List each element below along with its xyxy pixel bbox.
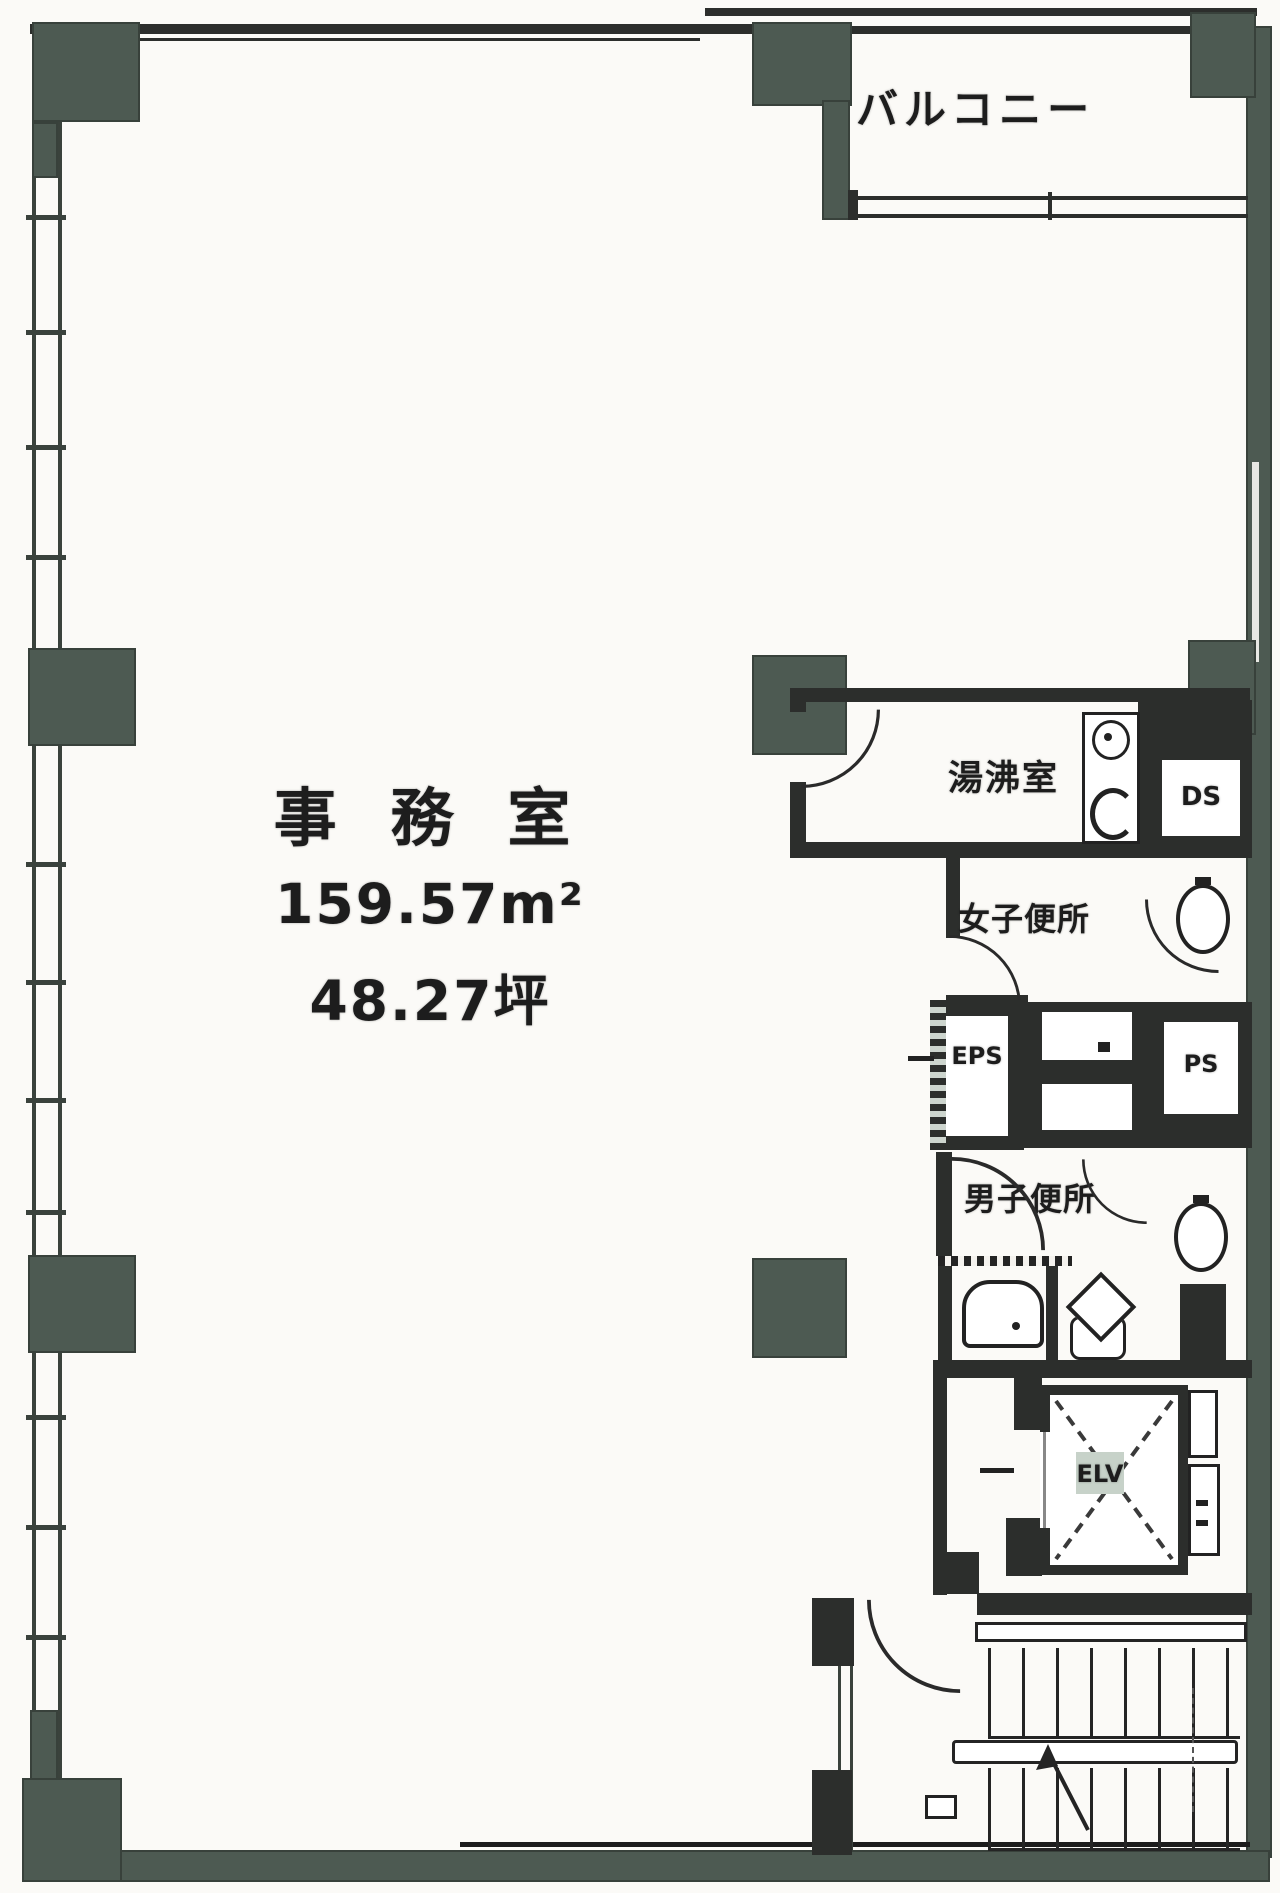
door-arc: [950, 1157, 1045, 1252]
elv-door-jamb-top: [1014, 1378, 1042, 1430]
floor-plan: バルコニー 事 務 室 159.57m² 48.27坪 湯沸室 DS 女子便所 …: [0, 0, 1280, 1893]
elevator-label: ELV: [1076, 1460, 1124, 1488]
pillar-bottom-left: [22, 1778, 122, 1882]
window-mullion: [26, 980, 66, 985]
elv-equipment-mark: [1196, 1500, 1208, 1506]
elv-equipment-mark: [1196, 1520, 1208, 1526]
elv-door-jamb-bottom: [1006, 1518, 1042, 1576]
eps-tick: [908, 1056, 934, 1061]
womens-toilet-label: 女子便所: [958, 894, 1090, 940]
door-arc: [867, 1598, 962, 1693]
shaft-block: [1180, 1284, 1226, 1364]
stair-jamb-bottom: [812, 1770, 852, 1855]
eps-room: [946, 1016, 1008, 1136]
washstand-cell-bottom: [1042, 1084, 1132, 1134]
wall-left-window-inner: [58, 120, 62, 1780]
stall-wall-left: [938, 1266, 952, 1366]
balcony-railing-outer: [705, 8, 1257, 16]
elv-lobby-step: [933, 1552, 979, 1594]
faucet-icon: [1098, 1042, 1110, 1052]
balcony-divider-wall: [822, 100, 850, 220]
pillar-top-left: [32, 22, 140, 122]
elv-equipment-bottom: [1188, 1464, 1220, 1556]
window-mullion: [26, 862, 66, 867]
window-mullion: [26, 330, 66, 335]
window-line-top: [140, 38, 700, 41]
wall-right-window: [1252, 462, 1259, 662]
sink-basin-icon: [1092, 720, 1130, 760]
toilet-icon: [1174, 1202, 1228, 1272]
door-arc: [800, 708, 880, 788]
office-area-tsubo: 48.27坪: [170, 956, 690, 1036]
window-mullion: [26, 215, 66, 220]
office-room-label: 事 務 室: [170, 768, 690, 859]
eps-hatch-wall: [930, 1000, 946, 1150]
wall-left-window-outer: [32, 120, 36, 1780]
washstand-cell-top: [1042, 1012, 1132, 1060]
window-mullion: [26, 1415, 66, 1420]
wall-bottom: [24, 1850, 1270, 1882]
wall-left-solid-top: [32, 122, 58, 178]
wall-right: [1246, 26, 1272, 1858]
toilet-tank-icon: [1195, 877, 1211, 885]
elv-door-line: [1043, 1432, 1046, 1528]
window-mullion: [26, 1210, 66, 1215]
stair-door-mark: [925, 1795, 957, 1819]
sink-drain-icon: [1104, 733, 1112, 741]
door-arc: [948, 935, 1021, 1008]
stair-direction-arrow: [1028, 1742, 1098, 1834]
elv-tick: [980, 1468, 1014, 1473]
balcony-window-tick: [1048, 192, 1052, 220]
water-heater-icon: [1090, 788, 1136, 840]
wall-left-solid-bottom: [30, 1710, 58, 1780]
mens-wall-top: [1024, 1130, 1252, 1148]
stair-flight-upper: [988, 1648, 1240, 1739]
pillar-low-left: [28, 1255, 136, 1353]
stair-flight-lower: [988, 1768, 1240, 1851]
pillar-low-center: [752, 1258, 847, 1358]
counter-hatch: [938, 1256, 1072, 1266]
stall-door-arc: [1145, 898, 1220, 973]
elv-equipment-top: [1188, 1390, 1218, 1458]
duct-space-label: DS: [1162, 782, 1240, 812]
pillar-top-middle: [752, 22, 852, 106]
washbasin-icon: [962, 1280, 1044, 1348]
kitchenette-label: 湯沸室: [948, 750, 1059, 801]
window-mullion: [26, 1098, 66, 1103]
window-mullion: [26, 1525, 66, 1530]
stair-break-line: [1192, 1688, 1194, 1812]
eps-label: EPS: [946, 1042, 1008, 1070]
office-area-m2: 159.57m²: [170, 872, 690, 936]
stair-top-rail: [975, 1622, 1247, 1642]
toilet-tank-icon: [1193, 1195, 1209, 1203]
balcony-label: バルコニー: [856, 76, 1256, 137]
window-mullion: [26, 445, 66, 450]
pillar-mid-left: [28, 648, 136, 746]
pipe-space-label: PS: [1164, 1050, 1238, 1078]
window-mullion: [26, 1635, 66, 1640]
stair-jamb-top: [812, 1598, 854, 1666]
stair-wall-top: [977, 1593, 1252, 1615]
washbasin-drain-icon: [1012, 1322, 1020, 1330]
wc-block-wall-bottom: [936, 1360, 1252, 1378]
balcony-window-cap: [848, 190, 858, 220]
window-mullion: [26, 555, 66, 560]
stall-door-arc: [1082, 1158, 1148, 1224]
stall-wall-right: [1046, 1266, 1058, 1366]
